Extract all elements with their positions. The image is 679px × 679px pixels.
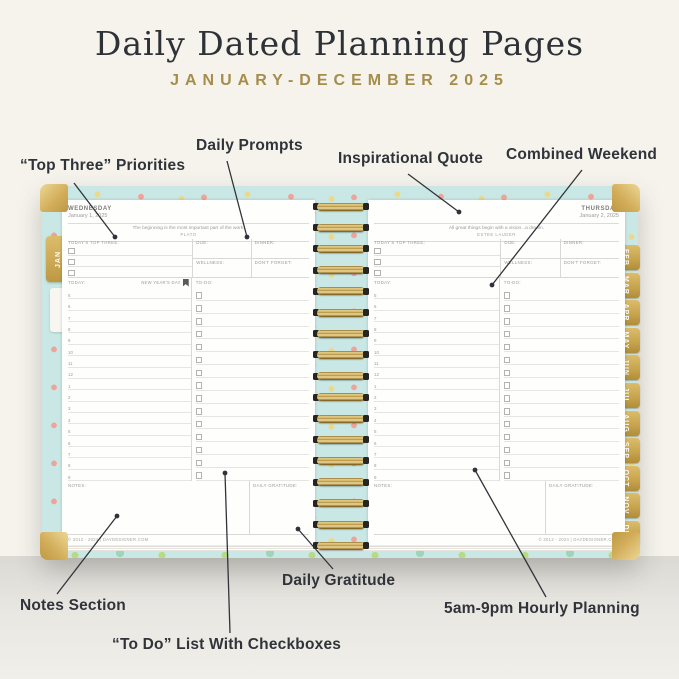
- punch-hole-icon: [363, 457, 369, 464]
- page-footer: © 2012 - 2024 | DAYDESIGNER.COM: [374, 537, 619, 542]
- punch-hole-icon: [363, 415, 369, 422]
- checkbox-icon: [374, 248, 381, 255]
- checkbox-icon: [196, 382, 203, 389]
- checkbox-icon: [504, 344, 511, 351]
- checkbox-icon: [504, 305, 511, 312]
- callout-combined-weekend: Combined Weekend: [506, 146, 657, 164]
- hour-row: 2: [374, 390, 499, 401]
- checkbox-icon: [504, 460, 511, 467]
- hour-row: 7: [374, 447, 499, 458]
- checkbox-icon: [196, 305, 203, 312]
- gold-wire-icon: [317, 330, 365, 338]
- hour-row: 5: [68, 424, 191, 435]
- daily-schedule-section: TODAY: NEW YEAR'S DAY 567891011121234567…: [68, 277, 309, 481]
- hour-row: 7: [68, 311, 191, 322]
- todo-row: [504, 314, 619, 327]
- date-label: January 2, 2025: [374, 213, 619, 219]
- checkbox-icon: [196, 370, 203, 377]
- hour-row: 3: [68, 402, 191, 413]
- hour-label: 9: [68, 338, 70, 344]
- callout-todo-list: “To Do” List With Checkboxes: [112, 636, 341, 654]
- hour-row: 9: [374, 470, 499, 481]
- daily-schedule-section: TODAY: 56789101112123456789 TO-DO:: [374, 277, 619, 481]
- hour-row: 6: [374, 436, 499, 447]
- hour-label: 7: [68, 316, 70, 322]
- checkbox-icon: [196, 318, 203, 325]
- hour-row: 9: [68, 470, 191, 481]
- hour-row: 2: [68, 390, 191, 401]
- hour-row: 5: [68, 288, 191, 299]
- todo-row: [504, 391, 619, 404]
- punch-hole-icon: [363, 373, 369, 380]
- todo-row: [196, 288, 309, 301]
- hour-row: 12: [374, 368, 499, 379]
- checkbox-icon: [374, 259, 381, 266]
- todo-row: [196, 301, 309, 314]
- checkbox-icon: [196, 331, 203, 338]
- spiral-loop-icon: [313, 456, 369, 465]
- checkbox-icon: [504, 421, 511, 428]
- punch-hole-icon: [363, 500, 369, 507]
- gold-wire-icon: [317, 478, 365, 486]
- hour-label: 1: [68, 384, 70, 390]
- gratitude-label: DAILY GRATITUDE:: [249, 481, 309, 534]
- hour-label: 5: [68, 293, 70, 299]
- todo-row: [504, 301, 619, 314]
- spiral-loop-icon: [313, 266, 369, 275]
- punch-hole-icon: [363, 203, 369, 210]
- gold-wire-icon: [317, 542, 365, 550]
- hour-label: 6: [374, 304, 376, 310]
- spiral-loop-icon: [313, 308, 369, 317]
- hour-label: 6: [68, 304, 70, 310]
- punch-hole-icon: [363, 245, 369, 252]
- checkbox-icon: [196, 421, 203, 428]
- todo-row: [504, 455, 619, 468]
- spiral-loop-icon: [313, 350, 369, 359]
- callout-daily-prompts: Daily Prompts: [196, 137, 303, 155]
- todo-row: [196, 417, 309, 430]
- hour-label: 7: [68, 452, 70, 458]
- spiral-loop-icon: [313, 520, 369, 529]
- todo-row: [504, 417, 619, 430]
- date-label: January 1, 2025: [68, 213, 309, 219]
- hour-row: 11: [374, 356, 499, 367]
- callout-daily-gratitude: Daily Gratitude: [282, 572, 395, 590]
- top-three-section: TODAY'S TOP THREE: DUE: WELLNESS: DINNER…: [68, 239, 309, 278]
- checkbox-icon: [504, 331, 511, 338]
- due-label: DUE:: [193, 239, 250, 259]
- hour-label: 8: [68, 327, 70, 333]
- checkbox-icon: [504, 472, 511, 479]
- callout-notes-section: Notes Section: [20, 597, 126, 615]
- hour-row: 12: [68, 368, 191, 379]
- quote-author: ESTEE LAUDER: [374, 232, 619, 237]
- hour-label: 8: [68, 463, 70, 469]
- quote-author: PLATO: [68, 232, 309, 237]
- todo-row: [504, 429, 619, 442]
- callout-inspirational-quote: Inspirational Quote: [338, 150, 483, 168]
- hour-label: 9: [68, 475, 70, 481]
- hour-row: 9: [374, 333, 499, 344]
- hour-label: 7: [374, 452, 376, 458]
- planner-page-left: WEDNESDAY January 1, 2025 The beginning …: [62, 200, 315, 545]
- todo-row: [504, 442, 619, 455]
- todo-row: [196, 314, 309, 327]
- quote-text: The beginning is the most important part…: [68, 226, 309, 231]
- punch-hole-icon: [363, 542, 369, 549]
- hour-label: 10: [374, 350, 379, 356]
- hour-row: 6: [374, 299, 499, 310]
- punch-hole-icon: [363, 288, 369, 295]
- hour-row: 4: [374, 413, 499, 424]
- gold-wire-icon: [317, 203, 365, 211]
- hour-label: 3: [374, 406, 376, 412]
- hourly-rows: 56789101112123456789: [374, 288, 499, 481]
- todo-row: [196, 455, 309, 468]
- checkbox-icon: [196, 434, 203, 441]
- spiral-loop-icon: [313, 202, 369, 211]
- spiral-loop-icon: [313, 393, 369, 402]
- hour-label: 5: [374, 293, 376, 299]
- checkbox-icon: [196, 460, 203, 467]
- todo-row: [504, 365, 619, 378]
- punch-hole-icon: [363, 521, 369, 528]
- callout-top-three-priorities: “Top Three” Priorities: [20, 157, 185, 175]
- gold-wire-icon: [317, 309, 365, 317]
- spiral-loop-icon: [313, 499, 369, 508]
- hour-label: 12: [68, 372, 73, 378]
- todo-row: [196, 378, 309, 391]
- gold-corner-icon: [40, 184, 68, 212]
- hour-label: 2: [68, 395, 70, 401]
- hour-label: 9: [374, 475, 376, 481]
- hour-label: 2: [374, 395, 376, 401]
- todo-row: [196, 327, 309, 340]
- checkbox-icon: [504, 292, 511, 299]
- hour-row: 1: [374, 379, 499, 390]
- hour-row: 10: [68, 345, 191, 356]
- image-title: Daily Dated Planning Pages: [0, 24, 679, 63]
- hour-row: 6: [68, 299, 191, 310]
- hour-row: 8: [68, 322, 191, 333]
- notes-section-row: NOTES: DAILY GRATITUDE:: [374, 481, 619, 535]
- product-image: Daily Dated Planning Pages JANUARY-DECEM…: [0, 0, 679, 679]
- spiral-loop-icon: [313, 287, 369, 296]
- top-three-row: [68, 256, 192, 267]
- checkbox-icon: [504, 408, 511, 415]
- spiral-loop-icon: [313, 541, 369, 550]
- top-three-row: [374, 256, 500, 267]
- todo-row: [504, 327, 619, 340]
- gold-corner-icon: [612, 184, 640, 212]
- checkbox-icon: [68, 248, 75, 255]
- checkbox-icon: [504, 395, 511, 402]
- hour-row: 8: [374, 322, 499, 333]
- hour-row: 6: [68, 436, 191, 447]
- hour-label: 11: [374, 361, 379, 367]
- hour-row: 5: [374, 424, 499, 435]
- todo-row: [504, 339, 619, 352]
- hour-label: 1: [374, 384, 376, 390]
- gold-wire-icon: [317, 224, 365, 232]
- gold-wire-icon: [317, 436, 365, 444]
- todo-row: [196, 365, 309, 378]
- hour-label: 7: [374, 316, 376, 322]
- todo-row: [504, 468, 619, 481]
- quote-text: All great things begin with a vision...a…: [374, 226, 619, 231]
- punch-hole-icon: [363, 479, 369, 486]
- todo-row: [196, 339, 309, 352]
- todo-label: TO-DO:: [196, 277, 309, 288]
- hour-row: 8: [68, 458, 191, 469]
- notes-label: NOTES:: [68, 481, 249, 534]
- due-label: DUE:: [501, 239, 559, 259]
- hour-row: 7: [374, 311, 499, 322]
- hour-label: 3: [68, 406, 70, 412]
- hour-label: 6: [68, 441, 70, 447]
- hour-row: 8: [374, 458, 499, 469]
- todo-row: [504, 404, 619, 417]
- gold-wire-icon: [317, 351, 365, 359]
- checkbox-icon: [504, 357, 511, 364]
- spiral-loop-icon: [313, 478, 369, 487]
- checkbox-icon: [196, 292, 203, 299]
- hourly-rows: 56789101112123456789: [68, 288, 191, 481]
- spiral-loop-icon: [313, 244, 369, 253]
- spiral-loop-icon: [313, 372, 369, 381]
- hour-label: 10: [68, 350, 73, 356]
- hour-label: 4: [68, 418, 70, 424]
- gold-wire-icon: [317, 457, 365, 465]
- checkbox-icon: [504, 370, 511, 377]
- checkbox-icon: [196, 447, 203, 454]
- gold-wire-icon: [317, 287, 365, 295]
- todo-row: [504, 352, 619, 365]
- hour-row: 11: [68, 356, 191, 367]
- hour-label: 8: [374, 463, 376, 469]
- flag-icon: [183, 279, 189, 287]
- planner-book: JAN FEBMARAPRMAYJUNJULAUGSEPOCTNOVDEC WE…: [42, 186, 638, 558]
- checkbox-icon: [374, 270, 381, 277]
- hour-row: 5: [374, 288, 499, 299]
- dinner-label: DINNER:: [252, 239, 309, 259]
- hour-row: 4: [68, 413, 191, 424]
- todo-row: [196, 442, 309, 455]
- today-label: TODAY:: [68, 280, 86, 285]
- dont-forget-label: DON'T FORGET:: [252, 259, 309, 278]
- wellness-label: WELLNESS:: [193, 259, 250, 278]
- top-three-rows: [374, 245, 500, 277]
- todo-row: [196, 352, 309, 365]
- todo-row: [504, 378, 619, 391]
- planner-page-right: THURSDAY January 2, 2025 All great thing…: [368, 200, 625, 545]
- todo-row: [196, 429, 309, 442]
- dinner-label: DINNER:: [561, 239, 619, 259]
- punch-hole-icon: [363, 436, 369, 443]
- punch-hole-icon: [363, 394, 369, 401]
- checkbox-icon: [504, 382, 511, 389]
- gold-wire-icon: [317, 415, 365, 423]
- punch-hole-icon: [363, 267, 369, 274]
- hour-row: 7: [68, 447, 191, 458]
- hour-label: 5: [68, 429, 70, 435]
- hour-label: 4: [374, 418, 376, 424]
- gold-wire-icon: [317, 499, 365, 507]
- gold-wire-icon: [317, 266, 365, 274]
- todo-row: [196, 468, 309, 481]
- today-label: TODAY:: [374, 280, 392, 285]
- image-subtitle: JANUARY-DECEMBER 2025: [0, 72, 679, 90]
- spiral-loop-icon: [313, 414, 369, 423]
- hour-label: 11: [68, 361, 73, 367]
- wellness-label: WELLNESS:: [501, 259, 559, 278]
- todo-label: TO-DO:: [504, 277, 619, 288]
- checkbox-icon: [504, 434, 511, 441]
- todo-rows: [196, 288, 309, 481]
- hour-label: 8: [374, 327, 376, 333]
- gratitude-label: DAILY GRATITUDE:: [545, 481, 619, 534]
- hour-row: 3: [374, 402, 499, 413]
- checkbox-icon: [504, 318, 511, 325]
- gold-wire-icon: [317, 393, 365, 401]
- weekday-label: WEDNESDAY: [68, 206, 309, 212]
- page-header: WEDNESDAY January 1, 2025: [68, 206, 309, 219]
- hour-row: 10: [374, 345, 499, 356]
- gold-corner-icon: [612, 532, 640, 560]
- checkbox-icon: [196, 408, 203, 415]
- callout-hourly-planning: 5am-9pm Hourly Planning: [444, 600, 640, 618]
- spiral-binding: [313, 186, 369, 558]
- top-three-row: [374, 267, 500, 277]
- spiral-loop-icon: [313, 435, 369, 444]
- notes-label: NOTES:: [374, 481, 545, 534]
- holiday-label: NEW YEAR'S DAY: [141, 280, 181, 285]
- checkbox-icon: [68, 270, 75, 277]
- punch-hole-icon: [363, 224, 369, 231]
- todo-row: [196, 391, 309, 404]
- hour-label: 9: [374, 338, 376, 344]
- hour-label: 6: [374, 441, 376, 447]
- spiral-loop-icon: [313, 329, 369, 338]
- gold-wire-icon: [317, 245, 365, 253]
- punch-hole-icon: [363, 351, 369, 358]
- page-header: THURSDAY January 2, 2025: [374, 206, 619, 219]
- dont-forget-label: DON'T FORGET:: [561, 259, 619, 278]
- todo-row: [196, 404, 309, 417]
- top-three-row: [68, 267, 192, 277]
- checkbox-icon: [504, 447, 511, 454]
- weekday-label: THURSDAY: [374, 206, 619, 212]
- todo-row: [504, 288, 619, 301]
- notes-section-row: NOTES: DAILY GRATITUDE:: [68, 481, 309, 535]
- spiral-loop-icon: [313, 223, 369, 232]
- gold-wire-icon: [317, 372, 365, 380]
- hour-label: 12: [374, 372, 379, 378]
- todo-rows: [504, 288, 619, 481]
- checkbox-icon: [68, 259, 75, 266]
- checkbox-icon: [196, 357, 203, 364]
- checkbox-icon: [196, 395, 203, 402]
- top-three-row: [68, 245, 192, 256]
- gold-wire-icon: [317, 521, 365, 529]
- hour-label: 5: [374, 429, 376, 435]
- top-three-rows: [68, 245, 192, 277]
- hour-row: 9: [68, 333, 191, 344]
- checkbox-icon: [196, 472, 203, 479]
- punch-hole-icon: [363, 330, 369, 337]
- hour-row: 1: [68, 379, 191, 390]
- page-footer: © 2012 - 2024 | DAYDESIGNER.COM: [68, 537, 309, 542]
- gold-corner-icon: [40, 532, 68, 560]
- checkbox-icon: [196, 344, 203, 351]
- top-three-row: [374, 245, 500, 256]
- punch-hole-icon: [363, 309, 369, 316]
- top-three-section: TODAY'S TOP THREE: DUE: WELLNESS: DINNER…: [374, 239, 619, 278]
